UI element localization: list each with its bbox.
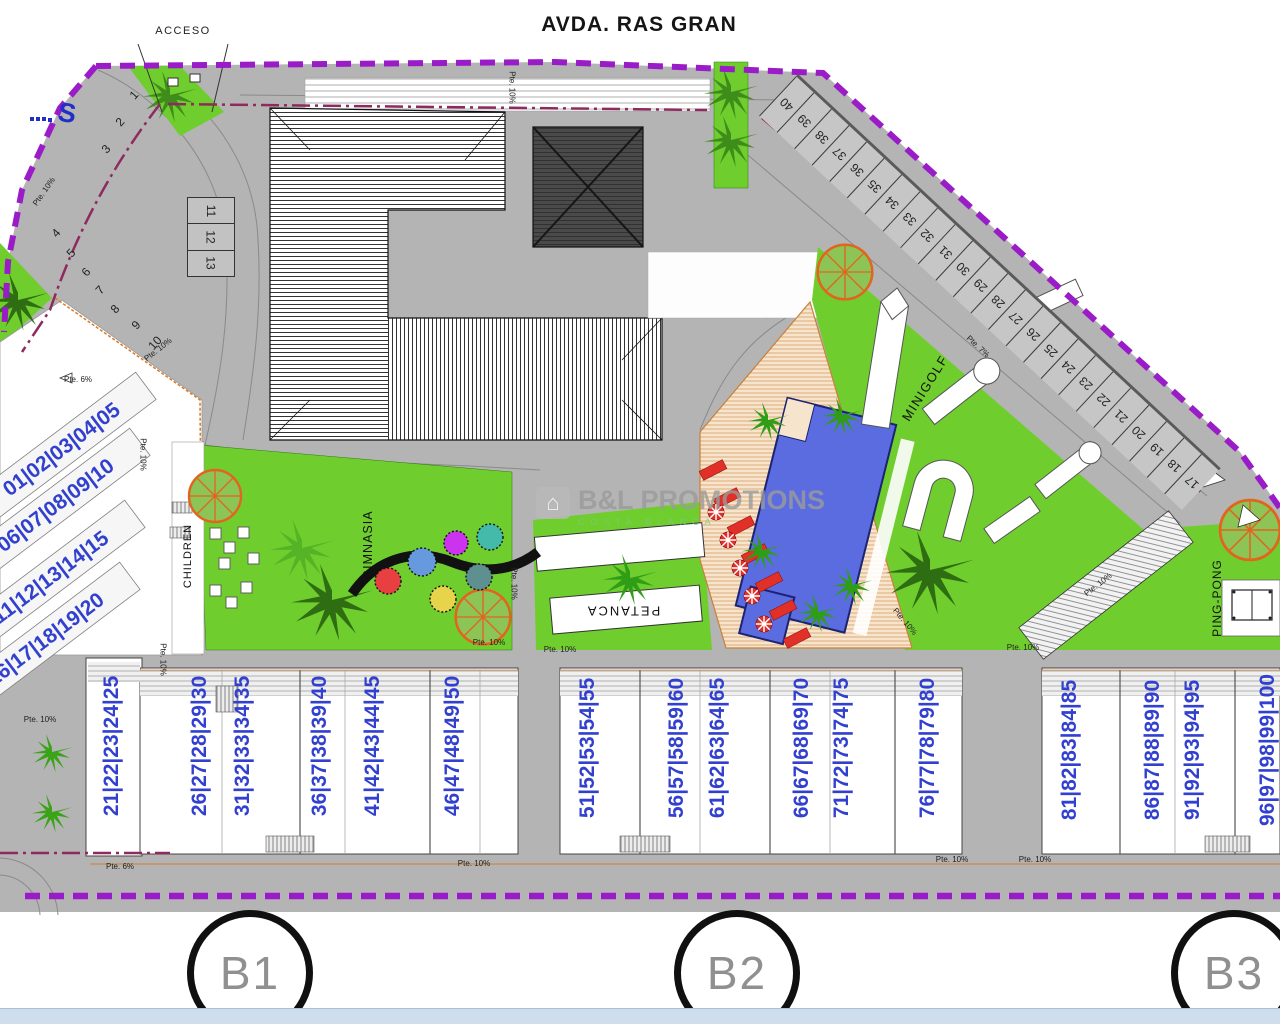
parking-space: 12	[188, 224, 234, 250]
watermark: ⌂ B&L PROMOTIONS COSTA BLANCA	[536, 487, 825, 528]
access-label: ACCESO	[155, 25, 210, 37]
zone-label-petanca: PETANCA	[586, 604, 660, 619]
pyramid-roof-building	[533, 127, 643, 247]
zone-label-children: CHILDREN	[182, 524, 194, 588]
parking-space: 13	[188, 251, 234, 276]
zone-label-pingpong: PING-PONG	[1210, 559, 1224, 637]
residential-blocks	[86, 658, 1280, 856]
parking-block-11-13: 111213	[187, 197, 235, 277]
street-name: AVDA. RAS GRAN	[541, 13, 737, 37]
pingpong-table	[1222, 580, 1280, 636]
green-strip-top	[714, 62, 748, 188]
watermark-tagline: COSTA BLANCA	[578, 517, 825, 528]
patio	[648, 252, 820, 318]
zone-label-gym: GIMNASIA	[361, 510, 375, 579]
bottom-band	[0, 1008, 1280, 1024]
watermark-brand: B&L PROMOTIONS	[578, 487, 825, 514]
site-plan: AVDA. RAS GRAN ACCESO S GIMNASIA CHILDRE…	[0, 0, 1280, 1024]
corner-mark-dots	[30, 117, 34, 121]
parking-space: 11	[188, 198, 234, 224]
house-icon: ⌂	[536, 487, 570, 519]
